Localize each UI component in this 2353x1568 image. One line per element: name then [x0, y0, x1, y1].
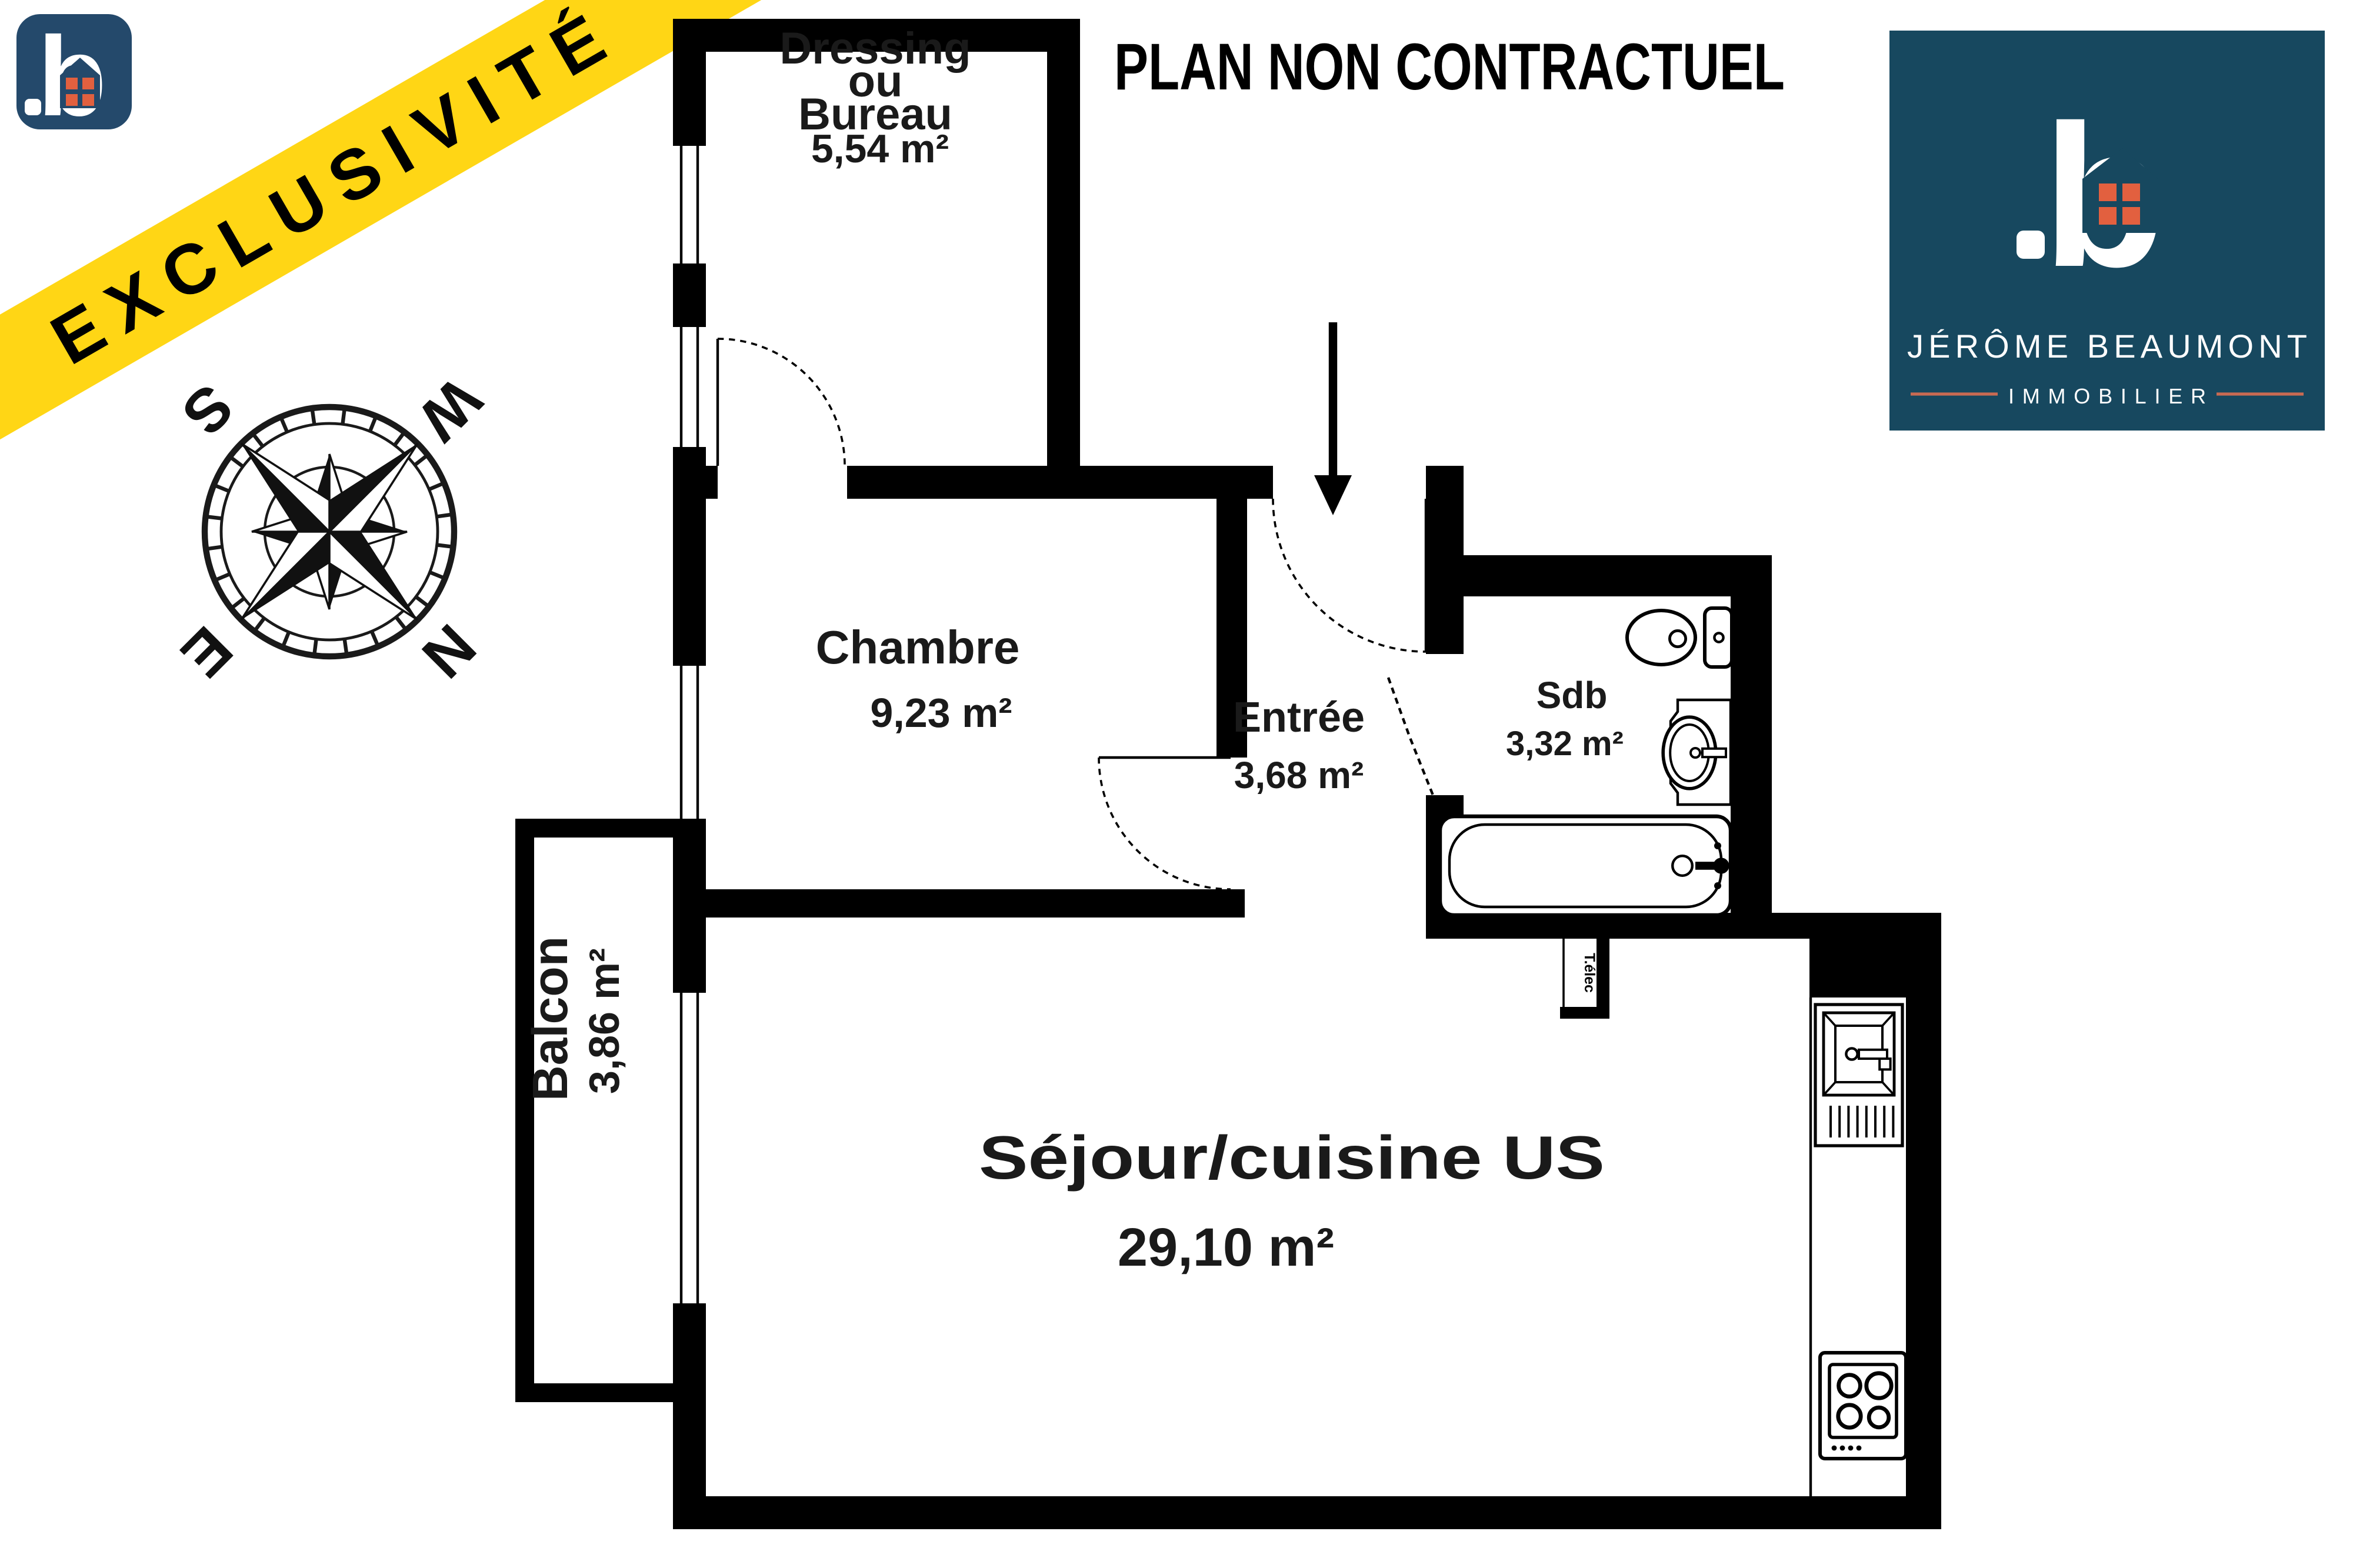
wall-sdb-right: [1731, 596, 1772, 915]
page: EXCLUSIVITÉ b b JÉRÔME BEAUMONT IMMOBILI…: [0, 0, 2353, 1568]
wall-sdb-top: [1426, 555, 1772, 596]
wall-bottom: [673, 1496, 1941, 1529]
wall-balcony-bottom: [515, 1383, 689, 1402]
svg-text:3,86 m²: 3,86 m²: [581, 948, 628, 1094]
wall-h1-a: [673, 466, 718, 499]
agency-logo-small: b: [16, 13, 132, 139]
page-title: PLAN NON CONTRACTUEL: [1114, 30, 1785, 104]
svg-text:3,68 m²: 3,68 m²: [1234, 754, 1364, 796]
wall-balcony-left: [515, 819, 534, 1402]
svg-text:5,54 m²: 5,54 m²: [811, 126, 949, 171]
agency-logo-main: b JÉRÔME BEAUMONT IMMOBILIER: [1889, 31, 2325, 431]
logo-dot: [25, 99, 41, 115]
svg-text:Entrée: Entrée: [1233, 694, 1365, 741]
svg-text:29,10 m²: 29,10 m²: [1118, 1217, 1334, 1277]
wall-left-1: [673, 19, 706, 146]
electrical-panel-label: T.élec: [1581, 953, 1597, 993]
svg-text:Séjour/cuisine US: Séjour/cuisine US: [979, 1124, 1605, 1192]
wall-h1-b: [847, 466, 1273, 499]
wall-telec-bottom: [1560, 1007, 1609, 1019]
wall-dressing-right: [1047, 19, 1080, 499]
svg-text:Chambre: Chambre: [816, 621, 1020, 673]
bathroom-sink-icon: [1663, 700, 1731, 805]
agency-subtitle: IMMOBILIER: [2008, 384, 2206, 408]
wall-telec-right: [1597, 939, 1609, 1019]
wall-right: [1906, 997, 1941, 1529]
logo-dot-large: [2017, 231, 2045, 259]
agency-name: JÉRÔME BEAUMONT: [1907, 328, 2307, 365]
wall-corner-chunk: [1809, 939, 1941, 997]
floor-plan-canvas: EXCLUSIVITÉ b b JÉRÔME BEAUMONT IMMOBILI…: [0, 0, 2353, 1568]
svg-text:Sdb: Sdb: [1537, 674, 1608, 716]
stove-icon: [1820, 1353, 1906, 1459]
bathtub-icon: [1440, 816, 1731, 915]
kitchen-sink-icon: [1815, 1005, 1902, 1146]
room-label-balcon: Balcon 3,86 m²: [522, 936, 628, 1101]
wall-balcony-top: [515, 819, 689, 838]
toilet-icon: [1627, 608, 1732, 667]
wall-sejour-top-left: [673, 889, 1245, 918]
wall-left-2: [673, 263, 706, 327]
svg-text:3,32 m²: 3,32 m²: [1506, 725, 1624, 763]
svg-text:Balcon: Balcon: [522, 936, 578, 1101]
svg-text:9,23 m²: 9,23 m²: [870, 690, 1012, 736]
